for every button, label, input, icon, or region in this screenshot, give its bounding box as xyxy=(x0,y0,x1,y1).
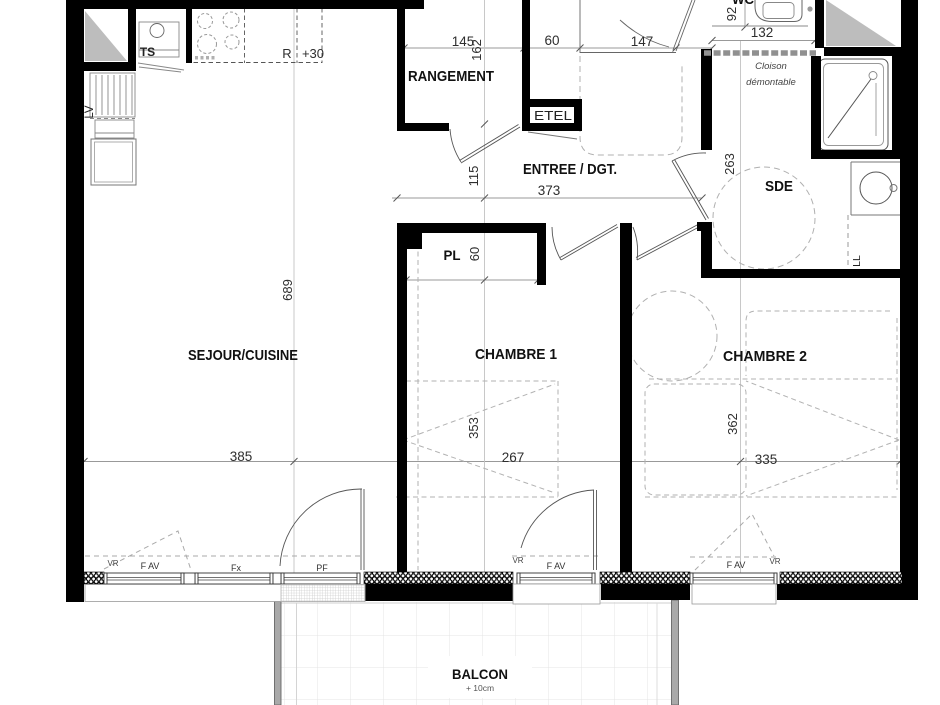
svg-text:LV: LV xyxy=(84,105,96,119)
svg-text:+ 10cm: + 10cm xyxy=(466,683,494,693)
svg-text:162: 162 xyxy=(469,39,484,61)
svg-text:VR: VR xyxy=(107,559,118,568)
svg-text:F AV: F AV xyxy=(141,561,160,571)
svg-text:RANGEMENT: RANGEMENT xyxy=(408,68,494,85)
svg-text:689: 689 xyxy=(280,279,295,301)
svg-text:362: 362 xyxy=(725,413,740,435)
svg-text:LL: LL xyxy=(851,255,863,267)
svg-text:267: 267 xyxy=(502,450,525,465)
svg-text:263: 263 xyxy=(722,153,737,175)
svg-text:BALCON: BALCON xyxy=(452,666,508,682)
svg-text:115: 115 xyxy=(466,166,481,187)
svg-text:147: 147 xyxy=(631,34,654,49)
svg-text:385: 385 xyxy=(230,449,253,464)
svg-text:ETEL: ETEL xyxy=(534,108,572,123)
svg-text:+30: +30 xyxy=(302,46,324,61)
svg-text:démontable: démontable xyxy=(746,77,796,88)
svg-text:Cloison: Cloison xyxy=(755,61,787,72)
svg-text:Fx: Fx xyxy=(231,563,241,573)
svg-text:VR: VR xyxy=(512,556,523,565)
svg-text:60: 60 xyxy=(544,33,559,48)
svg-text:60: 60 xyxy=(467,247,482,261)
svg-text:SEJOUR/CUISINE: SEJOUR/CUISINE xyxy=(188,347,298,364)
svg-text:SDE: SDE xyxy=(765,178,793,195)
svg-text:353: 353 xyxy=(466,417,481,439)
svg-text:TS: TS xyxy=(140,45,155,59)
svg-text:VR: VR xyxy=(769,557,780,566)
svg-text:R: R xyxy=(282,46,291,61)
svg-text:373: 373 xyxy=(538,183,561,198)
svg-text:CHAMBRE 2: CHAMBRE 2 xyxy=(723,348,807,365)
svg-text:ENTREE / DGT.: ENTREE / DGT. xyxy=(523,161,617,178)
svg-text:92: 92 xyxy=(724,7,739,21)
svg-text:PF: PF xyxy=(316,563,328,573)
svg-text:F AV: F AV xyxy=(727,560,746,570)
svg-text:WC: WC xyxy=(732,0,754,7)
svg-text:F AV: F AV xyxy=(547,561,566,571)
svg-text:PL: PL xyxy=(444,247,461,263)
svg-text:335: 335 xyxy=(755,452,778,467)
svg-text:132: 132 xyxy=(751,25,774,40)
svg-text:CHAMBRE 1: CHAMBRE 1 xyxy=(475,346,557,363)
